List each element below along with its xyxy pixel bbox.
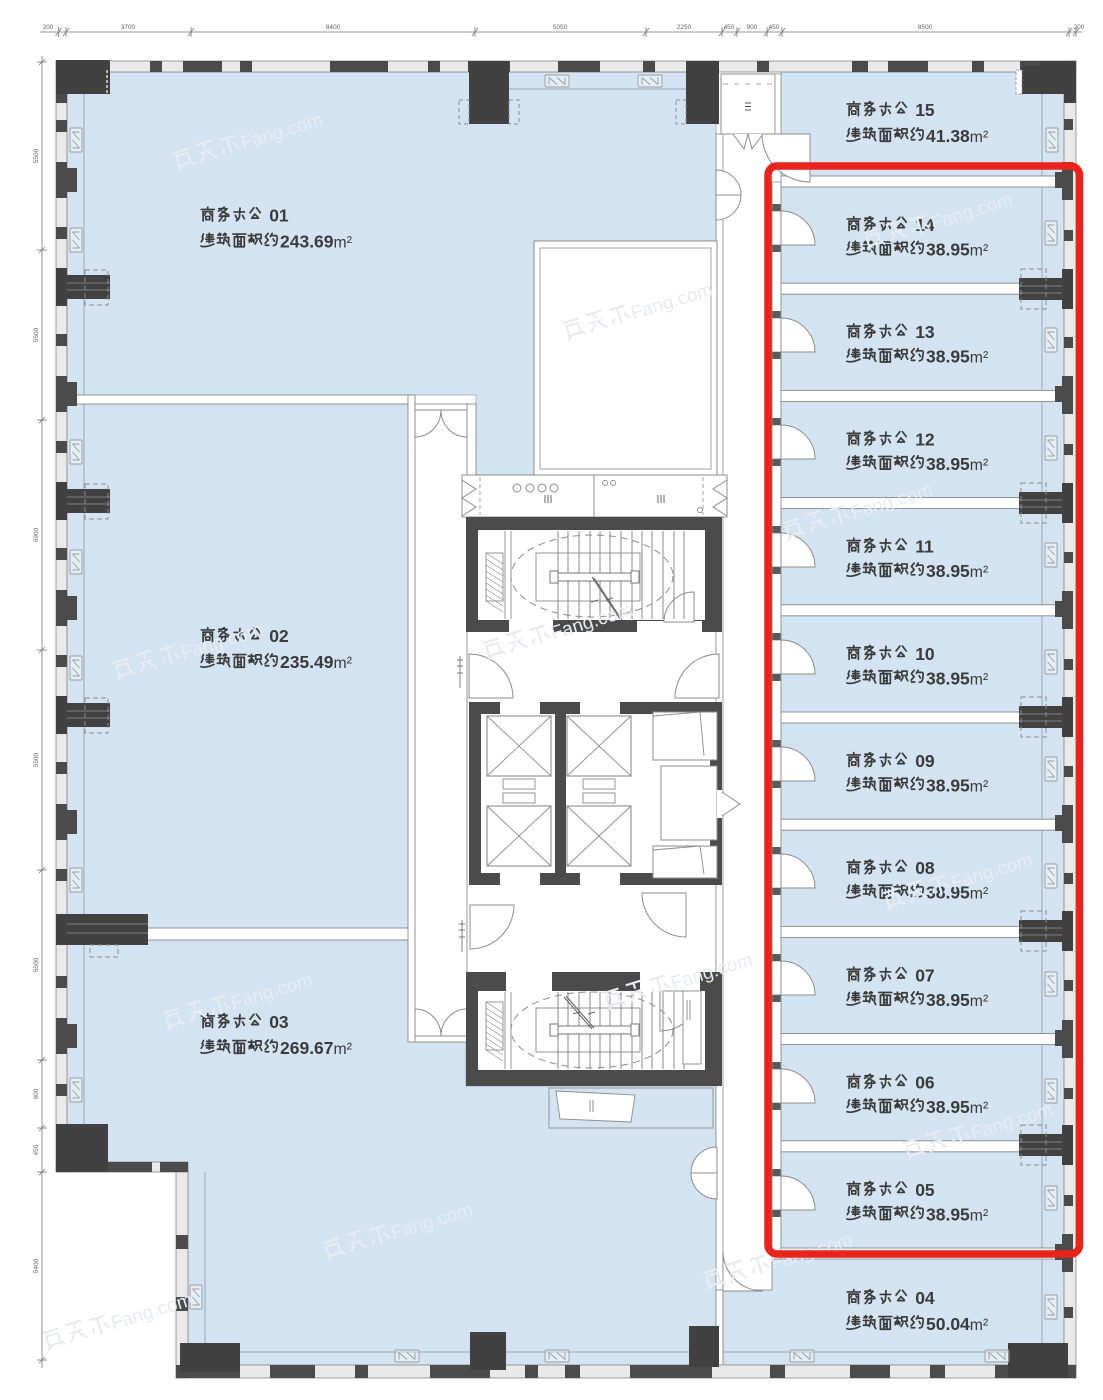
svg-text:8500: 8500	[918, 24, 933, 31]
svg-text:38.95m²: 38.95m²	[926, 561, 988, 581]
svg-text:38.95m²: 38.95m²	[926, 347, 988, 367]
svg-text:10: 10	[915, 644, 935, 664]
svg-text:38.95m²: 38.95m²	[926, 1204, 988, 1224]
svg-text:5400: 5400	[33, 1258, 40, 1273]
svg-text:5050: 5050	[553, 24, 568, 31]
svg-text:13: 13	[915, 322, 935, 342]
svg-text:243.69m²: 243.69m²	[280, 232, 352, 252]
svg-text:05: 05	[915, 1180, 935, 1200]
svg-text:38.95m²: 38.95m²	[926, 454, 988, 474]
svg-text:235.49m²: 235.49m²	[280, 652, 352, 672]
svg-text:11: 11	[915, 537, 934, 557]
svg-text:3700: 3700	[121, 24, 136, 31]
svg-text:01: 01	[269, 206, 289, 226]
svg-text:450: 450	[724, 24, 735, 31]
svg-text:5500: 5500	[33, 327, 40, 342]
svg-text:5500: 5500	[33, 752, 40, 767]
svg-text:04: 04	[915, 1288, 935, 1308]
svg-text:38.95m²: 38.95m²	[926, 240, 988, 260]
svg-text:6900: 6900	[33, 527, 40, 542]
svg-text:8400: 8400	[326, 24, 341, 31]
svg-text:03: 03	[269, 1012, 289, 1032]
svg-text:38.95m²: 38.95m²	[926, 990, 988, 1010]
svg-text:08: 08	[915, 858, 935, 878]
svg-text:450: 450	[33, 1144, 40, 1155]
svg-text:2250: 2250	[677, 24, 692, 31]
svg-text:07: 07	[915, 965, 934, 985]
svg-text:38.95m²: 38.95m²	[926, 1097, 988, 1117]
svg-text:5500: 5500	[33, 148, 40, 163]
svg-text:200: 200	[43, 24, 54, 31]
svg-text:269.67m²: 269.67m²	[280, 1038, 352, 1058]
svg-text:450: 450	[769, 24, 780, 31]
svg-text:15: 15	[915, 100, 935, 120]
svg-text:900: 900	[33, 1088, 40, 1099]
svg-text:06: 06	[915, 1073, 935, 1093]
svg-text:38.95m²: 38.95m²	[926, 668, 988, 688]
svg-text:900: 900	[747, 24, 758, 31]
svg-text:50.04m²: 50.04m²	[926, 1314, 988, 1334]
svg-text:02: 02	[269, 626, 289, 646]
svg-text:38.95m²: 38.95m²	[926, 776, 988, 796]
svg-text:12: 12	[915, 429, 935, 449]
svg-text:09: 09	[915, 751, 935, 771]
svg-text:41.38m²: 41.38m²	[926, 126, 988, 146]
svg-text:5500: 5500	[33, 957, 40, 972]
svg-text:200: 200	[1074, 24, 1085, 31]
